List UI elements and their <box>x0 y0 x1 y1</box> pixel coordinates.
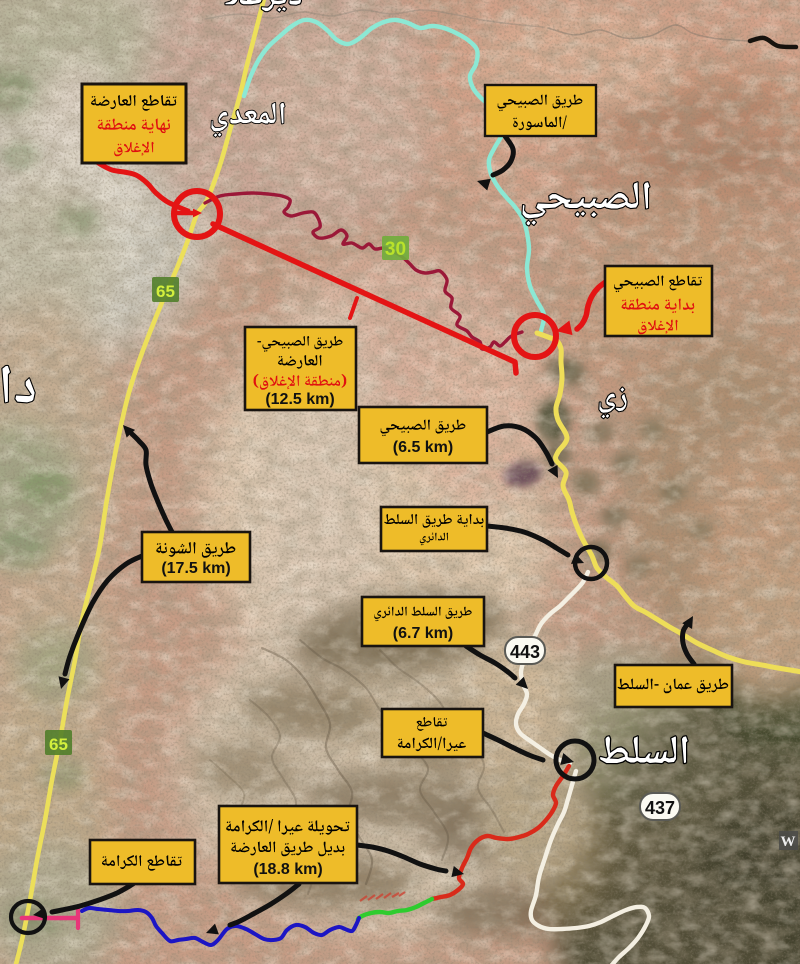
svg-text:(6.5 km): (6.5 km) <box>393 439 453 456</box>
svg-text:W: W <box>781 834 796 850</box>
svg-text:(6.7 km): (6.7 km) <box>393 625 453 642</box>
svg-text:437: 437 <box>645 798 675 818</box>
svg-text:443: 443 <box>510 642 540 662</box>
svg-text:30: 30 <box>385 239 406 260</box>
svg-text:(18.8 km): (18.8 km) <box>253 861 322 878</box>
svg-text:65: 65 <box>49 735 68 754</box>
svg-text:(12.5 km): (12.5 km) <box>265 391 334 408</box>
svg-text:65: 65 <box>156 282 175 301</box>
svg-text:(17.5 km): (17.5 km) <box>161 560 230 577</box>
